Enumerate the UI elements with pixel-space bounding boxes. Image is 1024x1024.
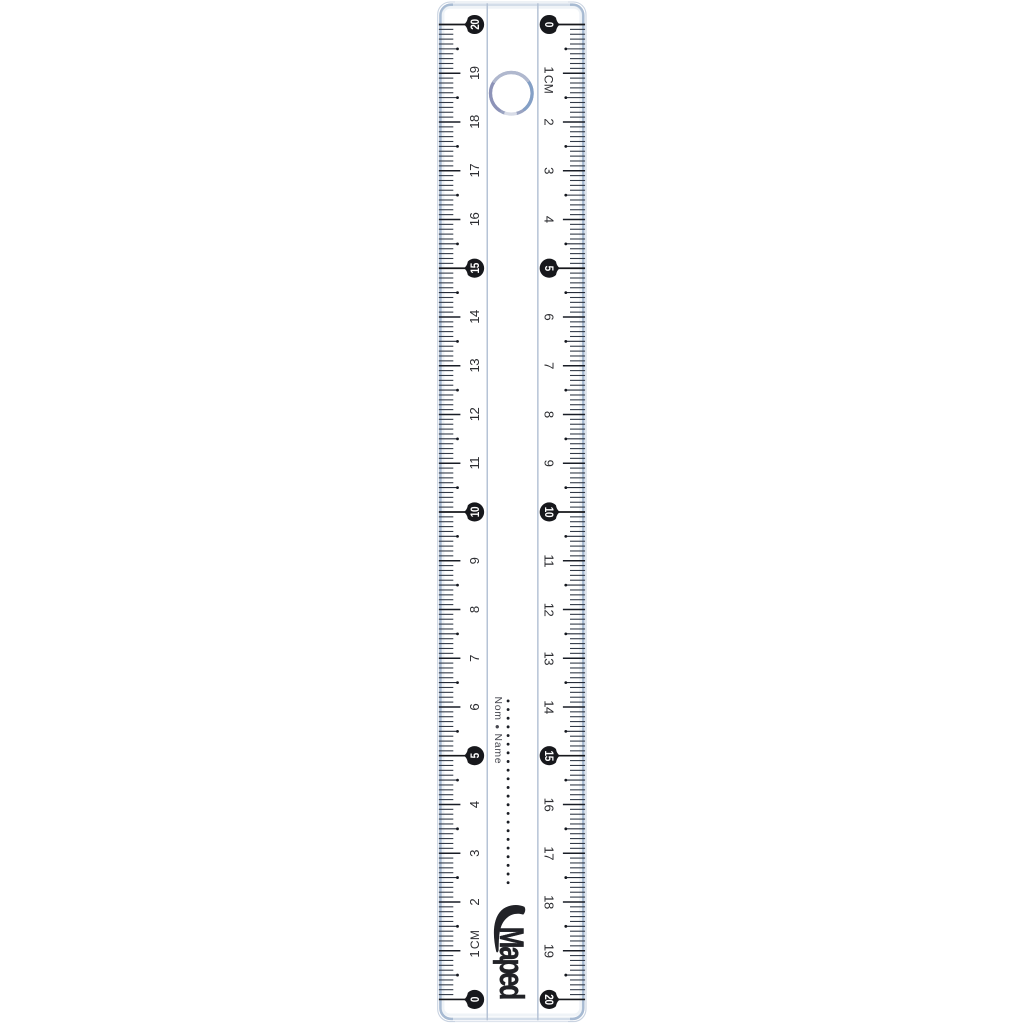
- svg-text:16: 16: [467, 212, 482, 226]
- svg-text:19: 19: [467, 66, 482, 80]
- svg-text:18: 18: [542, 895, 557, 909]
- svg-text:6: 6: [542, 313, 557, 320]
- svg-text:2: 2: [542, 118, 557, 125]
- svg-text:7: 7: [542, 362, 557, 369]
- svg-text:14: 14: [467, 310, 482, 324]
- svg-text:19: 19: [542, 944, 557, 958]
- svg-text:17: 17: [542, 846, 557, 860]
- svg-text:5: 5: [469, 753, 482, 759]
- svg-text:10: 10: [542, 507, 555, 518]
- svg-text:16: 16: [542, 798, 557, 812]
- svg-text:2: 2: [467, 898, 482, 905]
- svg-text:13: 13: [467, 359, 482, 373]
- svg-text:7: 7: [467, 655, 482, 662]
- svg-text:Nom ● Name: Nom ● Name: [492, 697, 503, 765]
- svg-text:3: 3: [467, 850, 482, 857]
- svg-text:12: 12: [467, 407, 482, 421]
- svg-text:3: 3: [542, 167, 557, 174]
- svg-text:10: 10: [469, 506, 482, 517]
- svg-text:20: 20: [542, 994, 555, 1005]
- svg-text:13: 13: [542, 651, 557, 665]
- svg-text:18: 18: [467, 115, 482, 129]
- svg-text:1CM: 1CM: [467, 930, 482, 958]
- svg-text:5: 5: [542, 266, 555, 272]
- svg-text:9: 9: [467, 557, 482, 564]
- svg-text:4: 4: [542, 216, 557, 223]
- svg-text:8: 8: [467, 606, 482, 613]
- svg-text:11: 11: [467, 457, 482, 470]
- svg-text:12: 12: [542, 603, 557, 617]
- svg-text:9: 9: [542, 460, 557, 467]
- svg-text:0: 0: [542, 22, 555, 28]
- svg-text:6: 6: [467, 703, 482, 710]
- svg-text:17: 17: [467, 164, 482, 178]
- svg-text:20: 20: [469, 19, 482, 30]
- svg-text:14: 14: [542, 700, 557, 714]
- svg-text:1CM: 1CM: [542, 66, 557, 94]
- svg-text:11: 11: [542, 554, 557, 567]
- svg-text:8: 8: [542, 411, 557, 418]
- svg-text:15: 15: [469, 263, 482, 274]
- svg-text:Maped: Maped: [492, 927, 529, 999]
- svg-text:4: 4: [467, 801, 482, 808]
- svg-text:0: 0: [469, 997, 482, 1003]
- svg-text:15: 15: [542, 750, 555, 761]
